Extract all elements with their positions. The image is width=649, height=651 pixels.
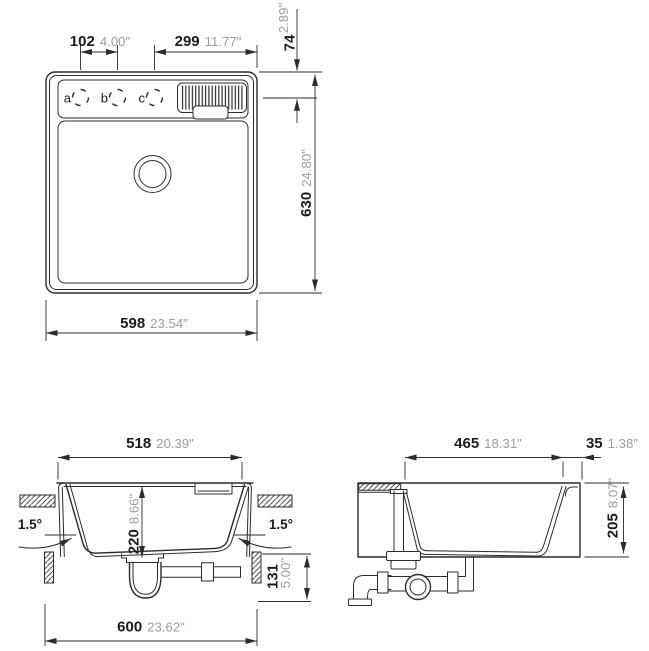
dim-edge-to-holes-mm: 74: [282, 34, 299, 51]
dim-bowl-height-label: 2058.07": [605, 477, 622, 538]
dim-under-clearance: 131 5.00": [258, 554, 311, 602]
tilt-angle-left: 1.5°: [18, 517, 76, 548]
tilt-arrow-left: [19, 539, 71, 549]
tilt-angle-right-label: 1.5°: [269, 517, 293, 532]
dim-edge-to-holes-in: 2.89": [276, 3, 291, 34]
dim-overall-width: 59823.54": [46, 300, 257, 341]
dim-edge-to-holes: 74 2.89": [259, 3, 322, 123]
dim-overall-length: 63024.80": [259, 75, 322, 294]
dim-bowl-height: 2058.07": [585, 477, 630, 557]
trap-cup-inner: [133, 563, 158, 595]
dim-drainer-width-label: 29911.77": [175, 33, 242, 50]
faucet-hole-c-label: c: [139, 91, 146, 106]
top-view: a b c 1024.00" 29911.77" 74: [46, 3, 322, 341]
countertop-left: [20, 495, 55, 507]
overflow-pipe-cap: [391, 490, 408, 494]
bowl-inner-surface-side: [407, 487, 563, 553]
dim-rear-offset-label: 351.38": [586, 435, 638, 452]
faucet-hole-a-label: a: [64, 91, 72, 106]
bowl-outer-surface-side: [403, 487, 566, 557]
faucet-hole-b: [110, 90, 126, 106]
drain-outer-circle: [134, 156, 171, 193]
drain-inner-circle: [139, 161, 166, 188]
tilt-angle-right: 1.5°: [234, 517, 293, 548]
overflow-recess: [195, 483, 232, 494]
cabinet-side-right: [252, 552, 261, 583]
side-profile-outline: [358, 483, 580, 557]
rim-notch: [566, 487, 578, 496]
dim-hole-spacing: 1024.00": [70, 33, 131, 70]
apron-right-inner: [247, 488, 249, 557]
dim-cabinet-width-label: 60023.62": [117, 619, 185, 636]
front-section-view: 1.5° 1.5° 51820.39" 2208.66" 131 5.00": [18, 435, 311, 646]
drain-body-upper: [387, 552, 421, 561]
dim-bowl-depth-label: 2208.66": [126, 493, 143, 554]
dim-bowl-length-label: 46518.31": [454, 435, 522, 452]
trap-bend-outer: [406, 575, 431, 600]
trap-cup-outer: [130, 563, 162, 599]
dim-under-clearance-in: 5.00": [278, 558, 293, 589]
dim-bowl-width-label: 51820.39": [126, 435, 194, 452]
side-section-view: 46518.31" 351.38" 2058.07": [349, 435, 639, 606]
overflow-cover: [193, 106, 228, 119]
bowl-outer-surface: [70, 485, 248, 557]
dim-overall-length-label: 63024.80": [298, 149, 315, 217]
faucet-hole-b-label: b: [101, 91, 108, 106]
dim-hole-spacing-label: 1024.00": [70, 33, 131, 50]
tilt-angle-left-label: 1.5°: [18, 517, 42, 532]
dim-overall-width-label: 59823.54": [120, 315, 188, 332]
faucet-hole-c: [147, 90, 163, 106]
dim-drainer-width: 29911.77": [155, 33, 258, 70]
drain-riser: [458, 557, 474, 591]
trap-nut-right: [448, 572, 459, 593]
trap-nut-left: [378, 572, 389, 593]
bowl-inner-surface: [66, 485, 245, 554]
dim-rear-offset: 351.38": [563, 435, 638, 480]
dim-bowl-length: 46518.31": [405, 435, 563, 480]
pipe-nut: [202, 563, 214, 581]
apron-left-inner: [62, 488, 64, 557]
drain-body-lower: [391, 561, 416, 570]
technical-drawing-sheet: a b c 1024.00" 29911.77" 74: [0, 0, 649, 651]
dim-cabinet-width: 60023.62": [45, 604, 257, 646]
dim-bowl-depth: 2208.66": [126, 487, 143, 558]
countertop-right: [258, 495, 292, 507]
sink-technical-drawing: a b c 1024.00" 29911.77" 74: [0, 0, 649, 651]
outlet-flange: [349, 599, 372, 606]
bowl-outline: [58, 121, 248, 283]
dim-bowl-width: 51820.39": [58, 435, 242, 480]
cabinet-side-left: [45, 552, 54, 583]
faucet-hole-a: [73, 90, 89, 106]
